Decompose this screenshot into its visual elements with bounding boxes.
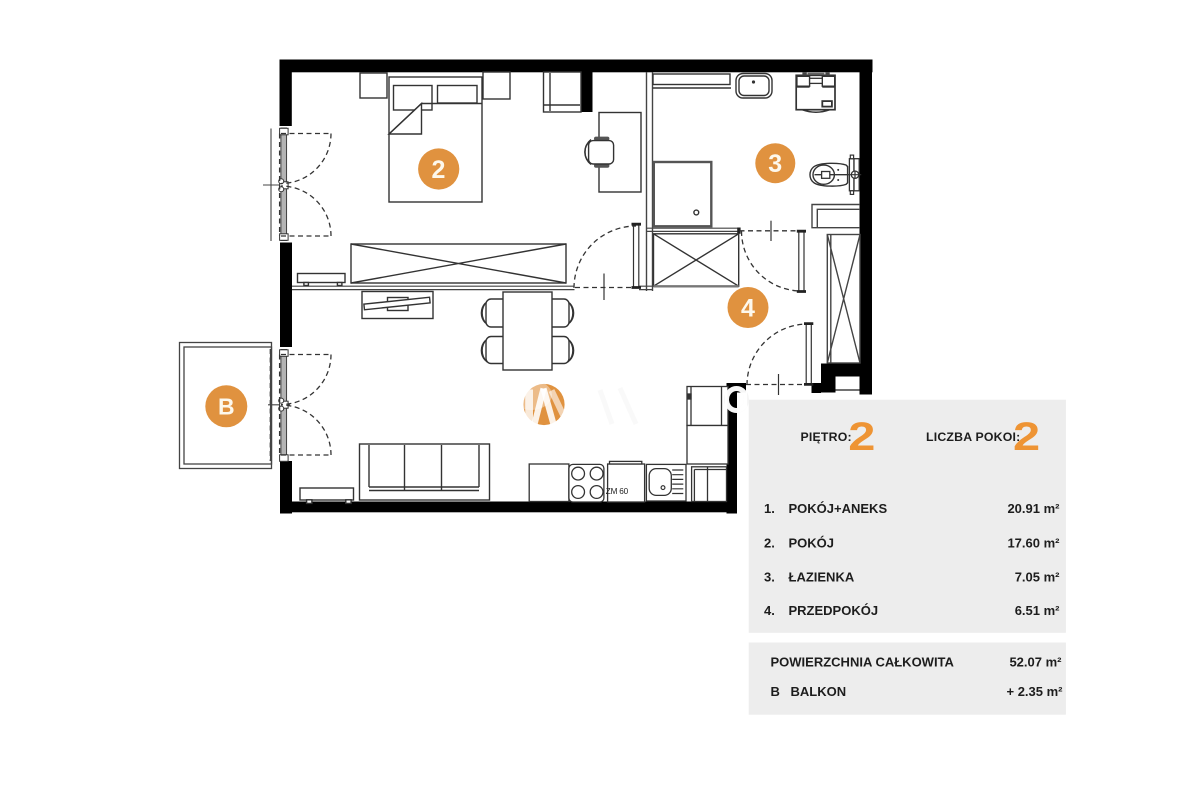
- svg-text:4.: 4.: [764, 603, 775, 618]
- svg-text:2: 2: [432, 156, 446, 184]
- svg-text:B: B: [218, 393, 235, 419]
- svg-text:2: 2: [848, 415, 875, 459]
- svg-text:PIĘTRO:: PIĘTRO:: [801, 430, 852, 444]
- svg-text:52.07 m²: 52.07 m²: [1009, 655, 1062, 670]
- svg-text:2: 2: [1013, 415, 1040, 459]
- svg-text:20.91 m²: 20.91 m²: [1007, 501, 1060, 516]
- svg-text:ZM 60: ZM 60: [606, 487, 629, 496]
- svg-text:LICZBA POKOI:: LICZBA POKOI:: [926, 430, 1020, 444]
- svg-text:6.51 m²: 6.51 m²: [1015, 603, 1060, 618]
- svg-text:1.: 1.: [764, 501, 775, 516]
- svg-text:POKÓJ: POKÓJ: [789, 535, 835, 550]
- svg-text:3.: 3.: [764, 570, 775, 585]
- svg-text:POWIERZCHNIA CAŁKOWITA: POWIERZCHNIA CAŁKOWITA: [771, 655, 955, 670]
- svg-text:PRZEDPOKÓJ: PRZEDPOKÓJ: [789, 603, 879, 618]
- svg-text:3: 3: [768, 150, 782, 178]
- svg-text:+ 2.35 m²: + 2.35 m²: [1006, 684, 1063, 699]
- svg-text:ŁAZIENKA: ŁAZIENKA: [789, 570, 855, 585]
- svg-text:BALKON: BALKON: [791, 684, 847, 699]
- svg-text:7.05 m²: 7.05 m²: [1015, 570, 1060, 585]
- svg-text:B: B: [771, 684, 780, 699]
- svg-text:17.60 m²: 17.60 m²: [1007, 535, 1060, 550]
- svg-text:POKÓJ+ANEKS: POKÓJ+ANEKS: [789, 501, 888, 516]
- svg-text:2.: 2.: [764, 535, 775, 550]
- svg-text:4: 4: [741, 294, 755, 322]
